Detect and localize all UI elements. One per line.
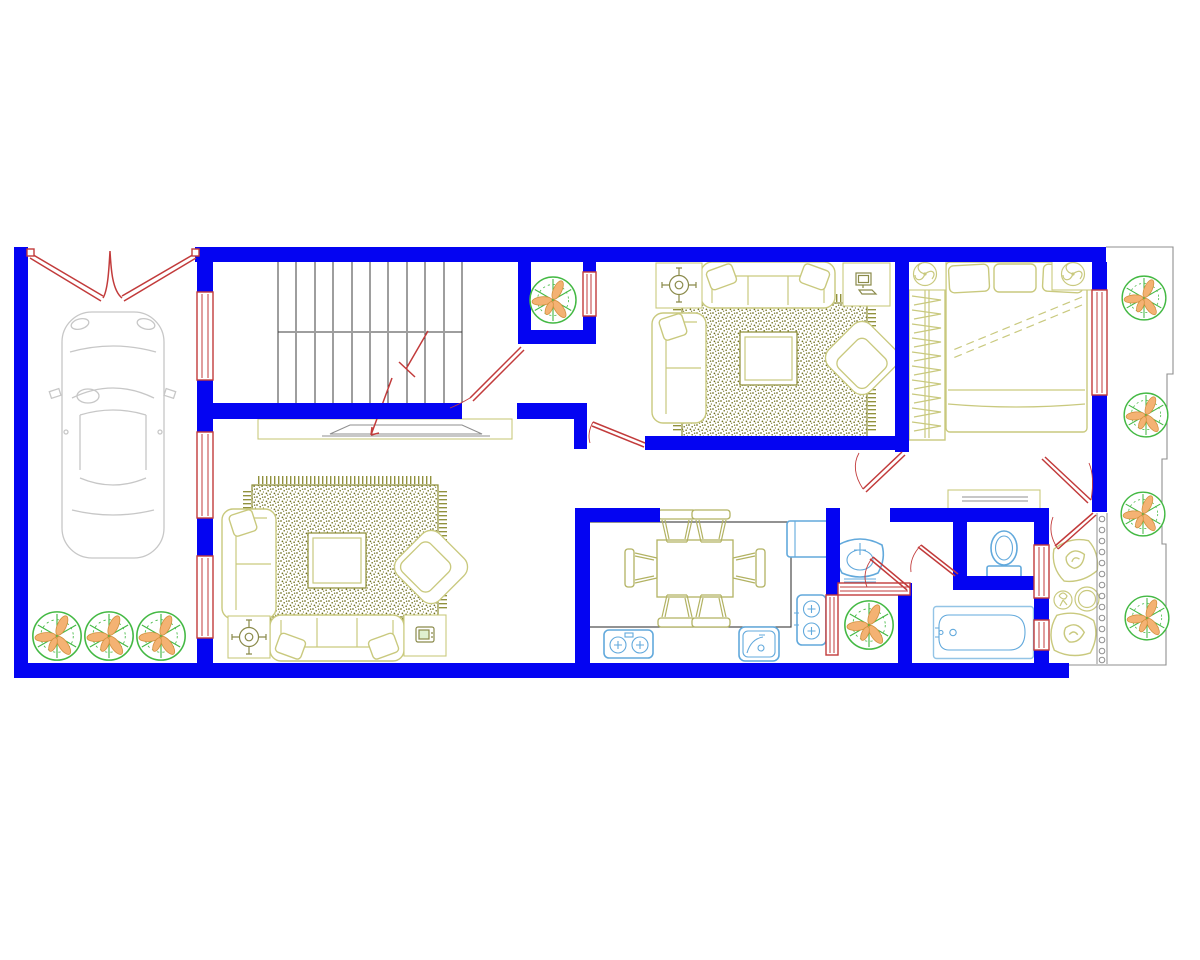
wall-segment <box>1034 598 1049 620</box>
wall-segment <box>583 316 596 330</box>
window <box>197 556 213 638</box>
tree-icon <box>530 277 576 323</box>
tv-console <box>258 419 512 439</box>
wall-segment <box>1092 262 1107 290</box>
pillow <box>994 264 1036 292</box>
wall-segment <box>890 508 1047 522</box>
tree-icon <box>845 601 893 649</box>
wall-segment <box>953 576 1042 590</box>
door-swing <box>450 347 524 408</box>
door-swing <box>589 422 645 447</box>
wall-segment <box>197 262 213 292</box>
car-top-view <box>49 312 175 558</box>
wall-segment <box>583 262 596 272</box>
window <box>1034 545 1049 598</box>
tree-icon <box>1124 393 1168 437</box>
tree-icon <box>33 612 81 660</box>
dining-chair <box>733 549 765 587</box>
wall-segment <box>195 247 1106 262</box>
wardrobe <box>909 288 945 440</box>
tree-icon <box>1121 492 1165 536</box>
window <box>197 292 213 380</box>
pillow <box>948 264 989 293</box>
dining-chair <box>692 595 730 627</box>
door-swing <box>1051 513 1096 549</box>
sofa-3seat <box>270 615 404 661</box>
tree-icon <box>137 612 185 660</box>
window <box>583 272 596 316</box>
kitchen-dining <box>578 510 829 661</box>
dining-chair <box>692 510 730 542</box>
balcony <box>1048 513 1107 664</box>
coffee-table <box>740 332 797 385</box>
wall-segment <box>213 403 462 419</box>
wall-segment <box>575 508 590 663</box>
tree-icon <box>1125 596 1169 640</box>
balcony-railing <box>1097 513 1107 664</box>
door-swing <box>855 452 905 492</box>
fridge <box>787 521 829 557</box>
tree-icon <box>85 612 133 660</box>
chaise-sofa <box>222 509 276 619</box>
window <box>838 583 910 595</box>
window <box>197 432 213 518</box>
door-swing <box>1042 457 1093 503</box>
dining-chair <box>625 549 657 587</box>
dining-chair <box>658 595 696 627</box>
wall-segment <box>1034 650 1049 663</box>
garage-gate <box>27 249 199 301</box>
wc <box>987 531 1021 581</box>
wall-segment <box>197 380 213 432</box>
wall-segment <box>518 330 596 344</box>
wall-segment <box>895 262 909 452</box>
floor-plan-canvas <box>0 0 1200 960</box>
wall-segment <box>645 436 908 450</box>
coffee-table <box>308 533 366 588</box>
door-swing <box>911 545 958 576</box>
wall-segment <box>574 403 587 449</box>
wicker-chair <box>1048 610 1100 659</box>
kitchen-sink <box>739 627 779 661</box>
chaise-sofa <box>652 313 706 423</box>
sofa-3seat <box>701 262 835 308</box>
bathtub <box>934 607 1034 659</box>
gas-stove-vertical <box>794 595 826 645</box>
wall-segment <box>197 518 213 556</box>
wall-segment <box>14 663 1069 678</box>
wall-segment <box>826 508 840 595</box>
tree-icon <box>1122 276 1166 320</box>
window <box>1034 620 1049 650</box>
bedroom <box>903 258 1094 512</box>
floor-plan-svg <box>0 0 1200 960</box>
wall-segment <box>14 247 28 678</box>
dining-table <box>657 540 733 597</box>
gas-stove <box>604 630 653 658</box>
wall-segment <box>1034 508 1049 545</box>
window <box>1092 290 1107 395</box>
window <box>826 595 838 655</box>
potted-plant <box>1054 591 1072 609</box>
wall-segment <box>197 638 213 663</box>
dining-chair <box>658 510 696 542</box>
wall-segment <box>1092 395 1107 512</box>
